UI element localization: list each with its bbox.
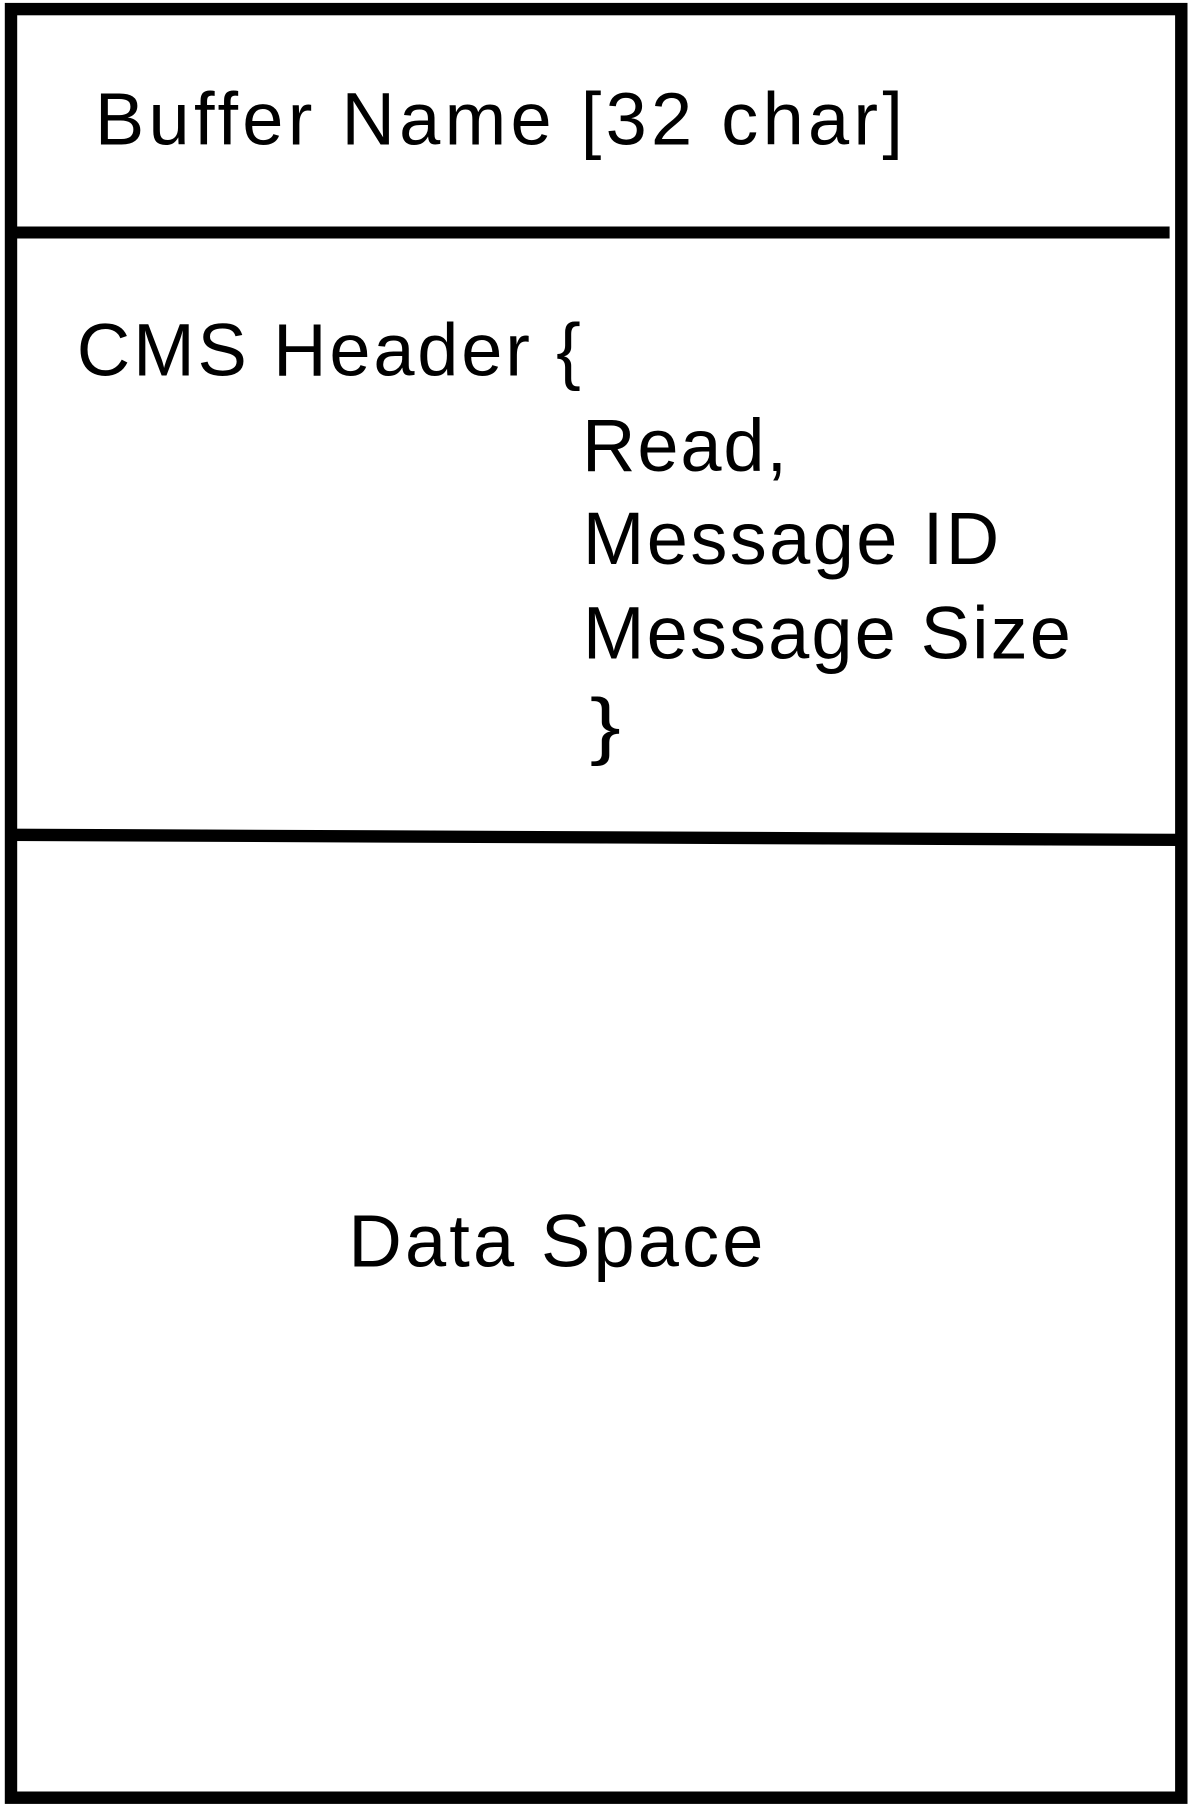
svg-text:Buffer Name [32 char]: Buffer Name [32 char] (95, 78, 903, 161)
svg-text:}: } (590, 684, 621, 767)
svg-text:Data Space: Data Space (348, 1200, 763, 1283)
svg-text:Message Size: Message Size (583, 592, 1071, 675)
svg-text:Read,: Read, (582, 404, 787, 487)
svg-text:Message ID: Message ID (583, 497, 1000, 580)
svg-text:CMS Header {: CMS Header { (77, 309, 581, 392)
